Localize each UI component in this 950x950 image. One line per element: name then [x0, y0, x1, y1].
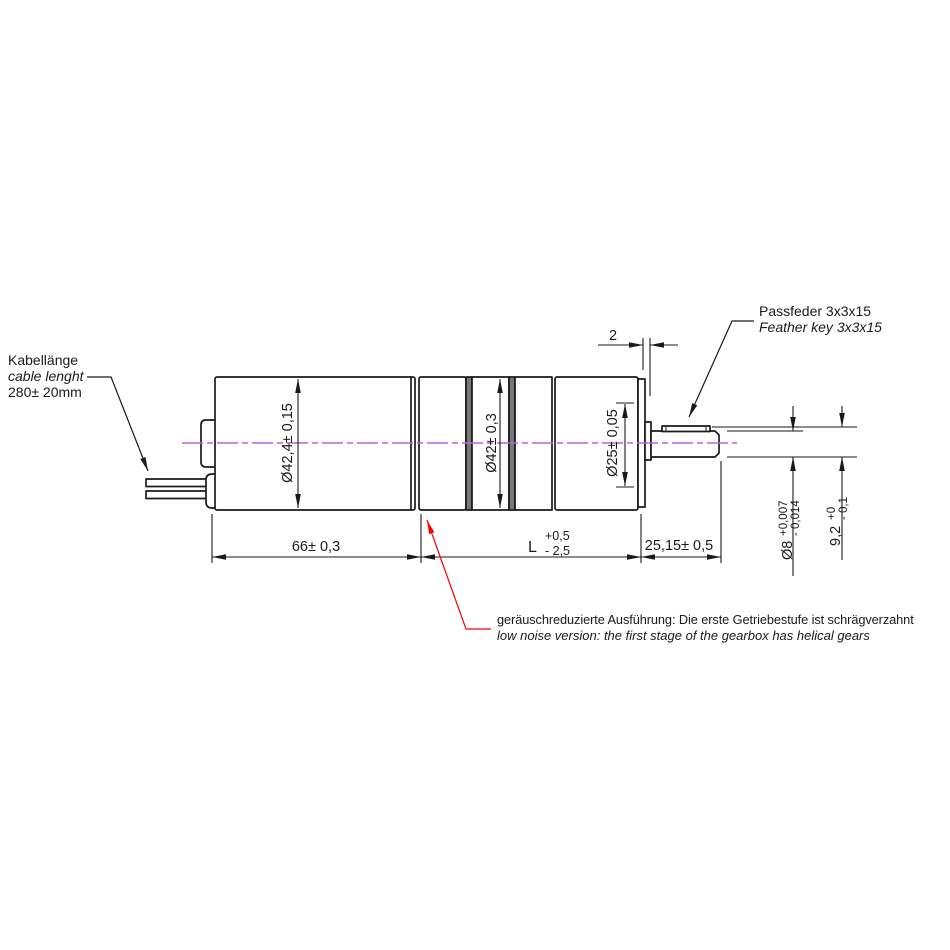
dim-text-key-height-plus: +0 — [826, 507, 838, 520]
dim-text-key-height-minus: - 0,1 — [838, 497, 850, 520]
dim-text-key-height-nominal: 9,2 — [828, 526, 844, 546]
low-noise-note-de: geräuschreduzierte Ausführung: Die erste… — [497, 612, 914, 627]
cable-label-de: Kabellänge — [8, 352, 78, 368]
technical-drawing: Kabellänge cable lenght 280± 20mm Passfe… — [0, 0, 950, 950]
dim-text-shaft-diameter-nominal: Ø8 — [780, 541, 796, 560]
drawing-page: Kabellänge cable lenght 280± 20mm Passfe… — [0, 0, 950, 950]
dim-text-motor-diameter: Ø42,4± 0,15 — [280, 403, 296, 483]
dim-text-gearbox-length-nominal: L — [528, 539, 537, 556]
dim-text-shaft-length: 25,15± 0,5 — [645, 538, 713, 554]
dim-text-shaft-diameter-plus: +0,007 — [778, 501, 790, 537]
output-shaft — [651, 431, 719, 457]
dim-text-pilot-diameter: Ø25± 0,05 — [605, 409, 621, 477]
low-noise-note-en: low noise version: the first stage of th… — [497, 628, 870, 643]
cable-label-value: 280± 20mm — [8, 384, 82, 400]
shaft-collar — [645, 422, 651, 460]
dim-text-gearbox-length-plus: +0,5 — [545, 529, 570, 543]
cable-label-en: cable lenght — [8, 368, 85, 384]
dim-text-gearbox-diameter: Ø42± 0,3 — [484, 413, 500, 473]
dim-text-gearbox-length-minus: - 2,5 — [545, 544, 570, 558]
feather-key-label-de: Passfeder 3x3x15 — [759, 303, 871, 319]
dim-text-shaft-diameter-minus: - 0,014 — [790, 500, 802, 536]
feather-key-label-en: Feather key 3x3x15 — [759, 319, 882, 335]
dim-text-collar-width: 2 — [609, 328, 617, 344]
feather-key — [662, 426, 710, 432]
dim-text-motor-length: 66± 0,3 — [292, 539, 340, 555]
